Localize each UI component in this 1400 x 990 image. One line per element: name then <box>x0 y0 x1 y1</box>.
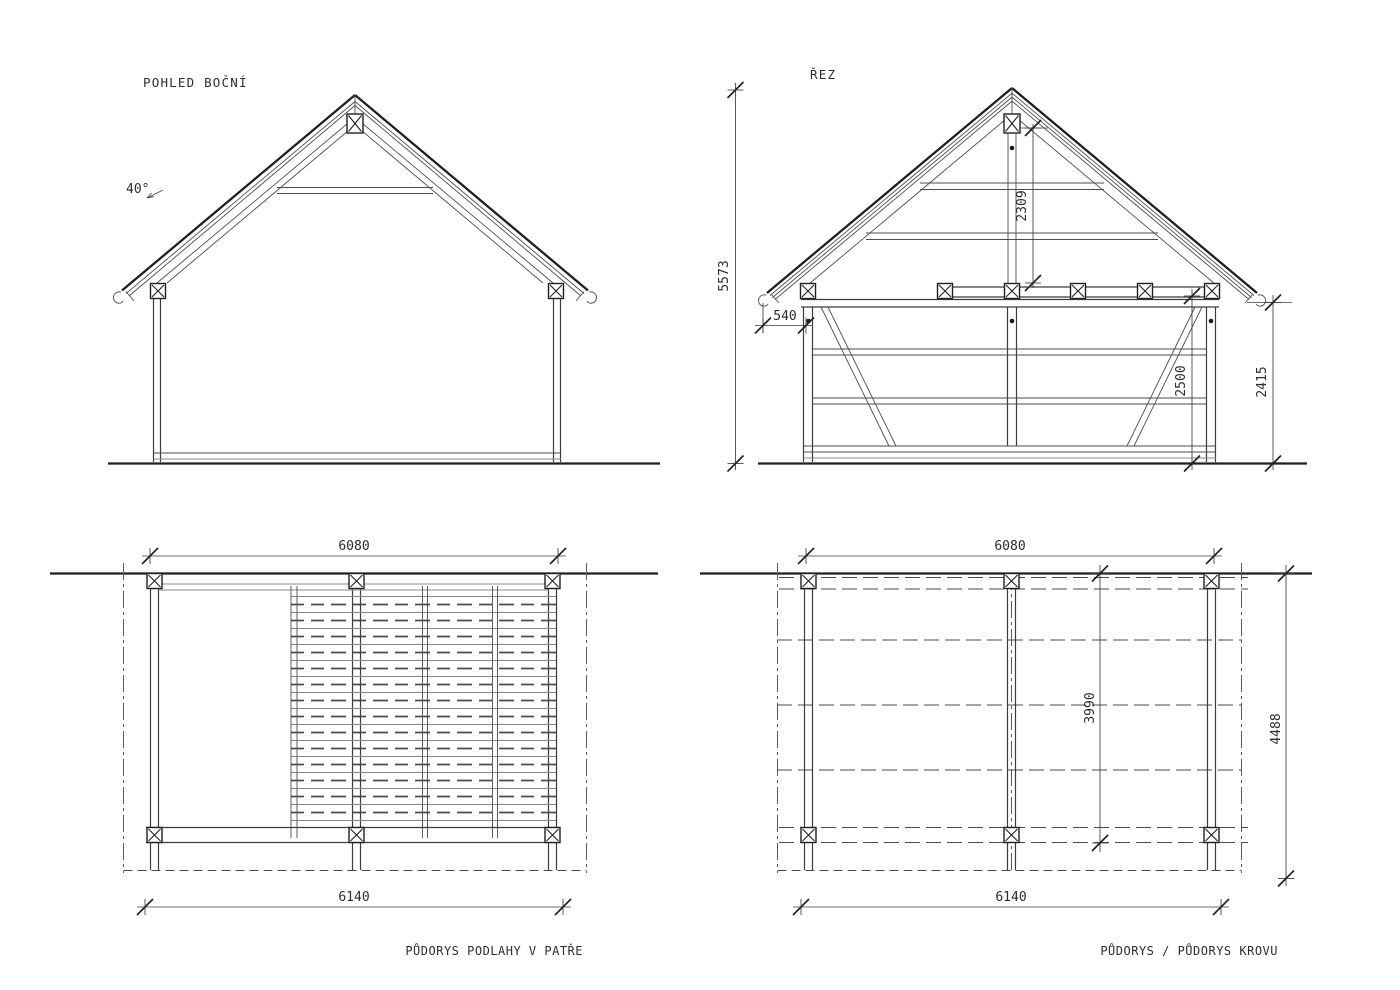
dim-total-height-value: 5573 <box>717 260 732 291</box>
joist-marker <box>1005 284 1020 299</box>
column-marker <box>801 574 816 589</box>
side-roof-left-slope <box>122 95 355 301</box>
floor-boards-hatch <box>291 592 556 824</box>
column-marker <box>1204 828 1219 843</box>
dim-floor-width-bottom-value: 6140 <box>338 890 369 905</box>
floor-plan-title: PŮDORYS PODLAHY V PATŘE <box>405 943 583 958</box>
plan-columns <box>805 573 1216 870</box>
cad-drawing-canvas: POHLED BOČNÍ 40° <box>0 0 1400 990</box>
column-marker <box>349 828 364 843</box>
dim-floor-width-top: 6080 <box>142 539 566 564</box>
drawing-sheet: POHLED BOČNÍ 40° <box>0 0 1400 990</box>
eave-purlin-marker-right <box>549 284 564 299</box>
roof-plan-title: PŮDORYS / PŮDORYS KROVU <box>1100 943 1278 958</box>
dim-frame-height-value: 2500 <box>1174 365 1189 396</box>
ridge-purlin-marker <box>347 114 363 133</box>
dim-roof-width-bottom-value: 6140 <box>995 890 1026 905</box>
column-marker <box>349 574 364 589</box>
column-marker <box>1004 828 1019 843</box>
wall-braces <box>821 307 1202 446</box>
dim-depth-outer-value: 4488 <box>1269 713 1284 744</box>
joist-marker <box>801 284 816 299</box>
sill-band <box>804 446 1216 458</box>
dim-frame-height: 2500 <box>1174 288 1200 472</box>
dim-ridge-to-plate-value: 2309 <box>1015 190 1030 221</box>
dim-ridge-to-plate: 2309 <box>1015 120 1048 291</box>
dim-roof-width-bottom: 6140 <box>793 890 1229 915</box>
dim-depth-inner: 3990 <box>1083 565 1108 852</box>
hidden-purlins <box>777 640 1242 770</box>
collar-beam <box>277 188 433 194</box>
section-roof-left-slope <box>758 88 1012 306</box>
dim-overhang-value: 540 <box>773 309 796 324</box>
column-marker <box>1004 574 1019 589</box>
dim-floor-width-bottom: 6140 <box>137 890 571 915</box>
section-ridge-purlin-marker <box>1004 114 1020 133</box>
dim-eave-height: 2415 <box>1247 295 1292 472</box>
column-marker <box>545 574 560 589</box>
dim-total-height: 5573 <box>717 82 744 472</box>
column-marker <box>801 828 816 843</box>
column-marker <box>545 828 560 843</box>
dim-roof-width-top: 6080 <box>798 539 1222 564</box>
side-roof-right-slope <box>355 95 588 301</box>
side-view-title: POHLED BOČNÍ <box>143 75 248 90</box>
floor-plan-view: 6080 <box>50 539 658 958</box>
dim-floor-width-top-value: 6080 <box>338 539 369 554</box>
bolt-dot <box>1209 319 1214 324</box>
gutter-hook-icon <box>113 292 596 303</box>
dim-eave-height-value: 2415 <box>1255 366 1270 397</box>
column-marker <box>147 828 162 843</box>
bolt-dot <box>1010 146 1015 151</box>
section-roof-right-slope <box>1012 88 1266 306</box>
side-posts <box>154 299 561 462</box>
column-marker <box>147 574 162 589</box>
joist-marker <box>938 284 953 299</box>
roof-plan-view: 6080 <box>700 539 1312 958</box>
wall-plate <box>801 300 1219 308</box>
dim-roof-width-top-value: 6080 <box>994 539 1025 554</box>
column-marker <box>1204 574 1219 589</box>
wall-posts <box>804 307 1216 462</box>
side-elevation-view: POHLED BOČNÍ 40° <box>108 75 660 464</box>
dim-depth-inner-value: 3990 <box>1083 692 1098 723</box>
gable-collar-beams <box>866 183 1158 240</box>
section-view: ŘEZ 5573 <box>717 67 1307 472</box>
roof-angle-label: 40° <box>126 182 149 197</box>
deck-band <box>154 453 561 459</box>
joist-marker <box>1138 284 1153 299</box>
bolt-dot <box>1010 319 1015 324</box>
section-title: ŘEZ <box>810 67 836 82</box>
eave-purlin-marker-left <box>151 284 166 299</box>
joist-marker <box>1205 284 1220 299</box>
dim-depth-outer: 4488 <box>1269 565 1294 887</box>
joist-marker <box>1071 284 1086 299</box>
